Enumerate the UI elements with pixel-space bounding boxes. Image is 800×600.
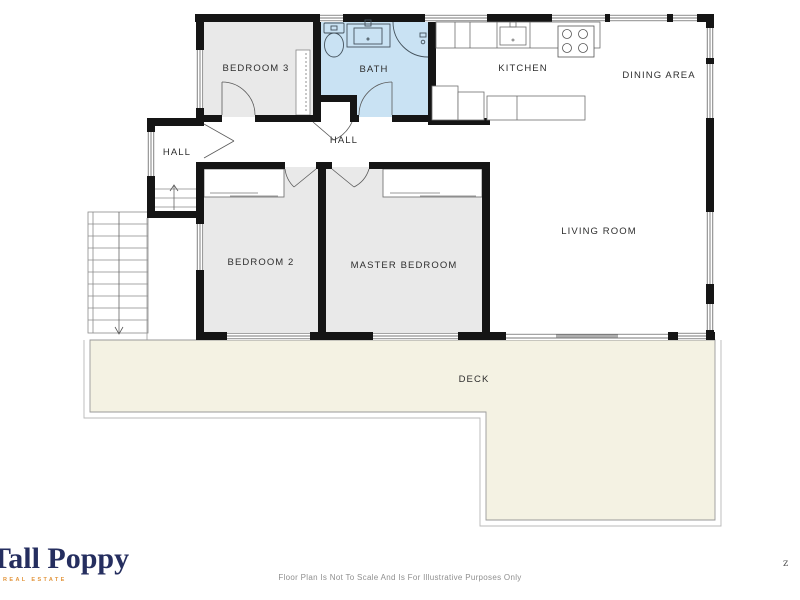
- bath-label: BATH: [359, 64, 388, 75]
- bedroom3-wardrobe: [296, 50, 310, 115]
- window: [425, 14, 487, 22]
- master-bedroom-label: MASTER BEDROOM: [351, 260, 458, 271]
- exterior-stairs: [88, 212, 148, 340]
- kitchen-label: KITCHEN: [498, 63, 547, 74]
- deck-area: [84, 340, 721, 526]
- sliding-door: [506, 332, 668, 340]
- hall-closet: [320, 101, 350, 121]
- deck-label: DECK: [459, 374, 490, 385]
- disclaimer-text: Floor Plan Is Not To Scale And Is For Il…: [0, 573, 800, 582]
- window: [196, 224, 204, 270]
- floorplan-page: { "plan": { "rooms": [ {"id": "bedroom-3…: [0, 0, 800, 600]
- window: [706, 28, 714, 58]
- hall-entry-label: HALL: [163, 147, 191, 158]
- kitchen-island: [487, 96, 585, 120]
- window: [320, 14, 343, 22]
- watermark-z: z: [783, 558, 788, 569]
- window: [706, 212, 714, 284]
- window: [373, 332, 458, 340]
- window: [673, 14, 697, 22]
- hall-corridor-label: HALL: [330, 135, 358, 146]
- bedroom2-label: BEDROOM 2: [228, 257, 295, 268]
- dining-area-label: DINING AREA: [622, 70, 695, 81]
- tall-poppy-logo: Tall Poppy: [0, 544, 129, 574]
- window: [706, 304, 714, 330]
- living-room-label: LIVING ROOM: [561, 226, 636, 237]
- window: [196, 50, 204, 108]
- entry-door: [204, 124, 234, 158]
- window: [552, 14, 605, 22]
- bedroom3-label: BEDROOM 3: [223, 63, 290, 74]
- window: [147, 132, 155, 176]
- interior-stairs: [152, 185, 196, 210]
- window: [610, 14, 667, 22]
- window: [678, 332, 706, 340]
- window: [227, 332, 310, 340]
- window: [706, 64, 714, 118]
- kitchen-cabinet: [432, 86, 484, 120]
- floorplan-drawing: BEDROOM 3 BATH KITCHEN DINING AREA HALL …: [0, 0, 800, 600]
- cooktop-fixture: [558, 26, 594, 57]
